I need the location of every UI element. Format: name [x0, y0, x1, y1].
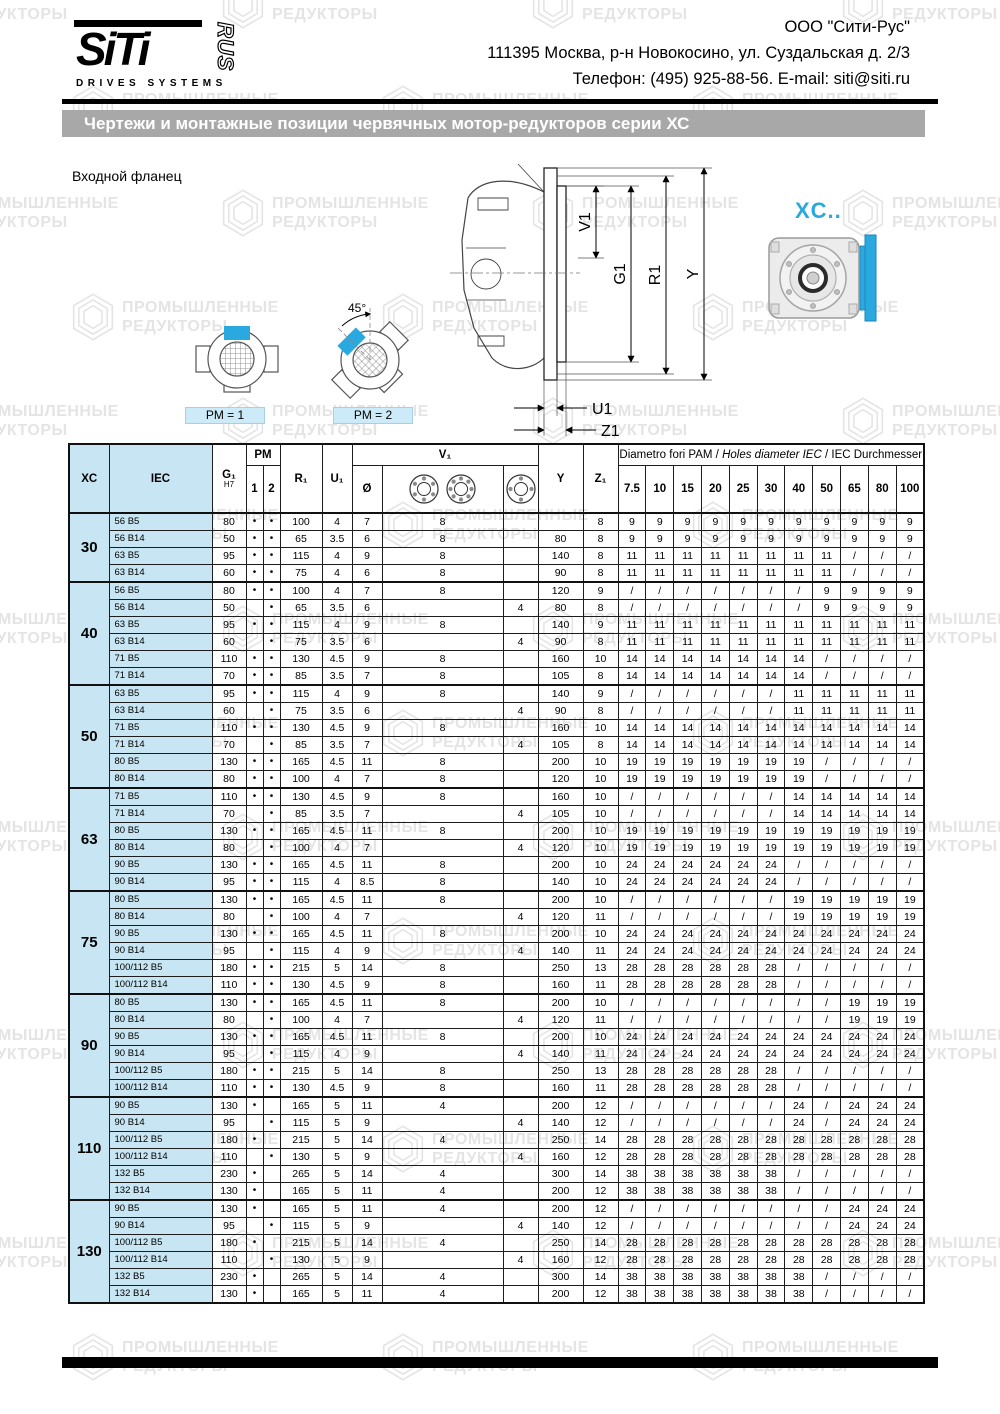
pam-7.5-cell: /	[618, 891, 646, 909]
pm2-cell: •	[263, 891, 280, 909]
pam-100-cell: 14	[896, 737, 924, 754]
v1-8hole-cell: 8	[382, 788, 503, 806]
pam-65-cell: 24	[841, 1097, 869, 1115]
y-cell: 120	[538, 1012, 583, 1029]
diameter-cell: 11	[352, 1200, 382, 1218]
z1-cell: 11	[583, 1046, 618, 1063]
u1-cell: 4	[322, 943, 352, 960]
pam-10-cell: /	[646, 891, 674, 909]
z1-cell: 10	[583, 994, 618, 1012]
pam-80-cell: 24	[868, 1218, 896, 1235]
pam-40-cell: 14	[785, 668, 813, 686]
v1-8hole-cell: 8	[382, 1029, 503, 1046]
iec-cell: 132 B5	[109, 1166, 212, 1183]
u1-cell: 5	[322, 1269, 352, 1286]
diameter-cell: 14	[352, 1235, 382, 1252]
r1-cell: 100	[280, 840, 322, 857]
pam-10-cell: 28	[646, 1132, 674, 1149]
g1-cell: 70	[212, 737, 246, 754]
v1-4hole-cell	[503, 1269, 538, 1286]
pm1-cell: •	[246, 788, 263, 806]
pam-30-cell: 28	[757, 960, 785, 977]
pam-65-cell: 24	[841, 926, 869, 943]
pam-65-cell: 19	[841, 909, 869, 926]
g1-cell: 130	[212, 891, 246, 909]
y-cell: 200	[538, 1183, 583, 1201]
pam-40-cell: 11	[785, 565, 813, 583]
table-row: 90 B5130••1654.511820010242424242424////…	[69, 857, 924, 874]
table-row: 90 B1495••11548.5814010242424242424/////	[69, 874, 924, 892]
table-row: 100/112 B14110•1305941601228282828282828…	[69, 1149, 924, 1166]
g1-cell: 80	[212, 513, 246, 531]
g1-cell: 130	[212, 994, 246, 1012]
pam-15-cell: 24	[674, 1029, 702, 1046]
z1-cell: 8	[583, 600, 618, 617]
dim-z1-label: Z1	[601, 423, 620, 440]
pam-100-cell: 14	[896, 720, 924, 737]
pm2-cell: •	[263, 685, 280, 703]
pam-20-cell: 24	[701, 857, 729, 874]
diameter-cell: 6	[352, 703, 382, 720]
pam-65-cell: 11	[841, 634, 869, 651]
u1-cell: 4.5	[322, 977, 352, 995]
pam-25-cell: 28	[729, 1132, 757, 1149]
pam-15-cell: 19	[674, 840, 702, 857]
pam-30-cell: 28	[757, 1149, 785, 1166]
pam-40-cell: 11	[785, 634, 813, 651]
dim-y-label: Y	[685, 268, 702, 279]
y-cell: 300	[538, 1269, 583, 1286]
pam-10-cell: 38	[646, 1286, 674, 1304]
pam-80-cell: /	[868, 548, 896, 565]
v1-8hole-cell	[382, 840, 503, 857]
pam-50-cell: 14	[813, 788, 841, 806]
pam-65-cell: /	[841, 874, 869, 892]
pam-15-cell: /	[674, 685, 702, 703]
pam-80-cell: 19	[868, 823, 896, 840]
pam-25-cell: 28	[729, 1149, 757, 1166]
pam-50-cell: /	[813, 1097, 841, 1115]
pam-80-cell: 11	[868, 703, 896, 720]
g1-cell: 110	[212, 1080, 246, 1098]
u1-cell: 4	[322, 582, 352, 600]
z1-cell: 13	[583, 960, 618, 977]
z1-cell: 8	[583, 703, 618, 720]
pam-7.5-cell: 28	[618, 960, 646, 977]
g1-cell: 95	[212, 943, 246, 960]
pam-100-cell: /	[896, 1286, 924, 1304]
pam-10-cell: /	[646, 788, 674, 806]
iec-cell: 100/112 B14	[109, 1080, 212, 1098]
pam-80-cell: 19	[868, 909, 896, 926]
table-row: 80 B1480•10047412011////////191919	[69, 1012, 924, 1029]
table-row: 90 B1495•11559414012//////24/242424	[69, 1115, 924, 1132]
pam-15-cell: 19	[674, 771, 702, 789]
iec-cell: 63 B14	[109, 703, 212, 720]
pam-20-cell: 24	[701, 1046, 729, 1063]
col-header-pam: Diametro fori PAM / Holes diameter IEC /…	[618, 444, 924, 466]
pm2-cell: •	[263, 582, 280, 600]
company-info: ООО "Сити-Рус" 111395 Москва, р-н Новоко…	[487, 14, 910, 92]
pam-20-cell: 19	[701, 754, 729, 771]
diameter-cell: 14	[352, 1166, 382, 1183]
pm1-label: PM = 1	[185, 407, 265, 424]
v1-8hole-cell	[382, 1218, 503, 1235]
xc-size-cell: 90	[69, 994, 109, 1097]
pm1-cell: •	[246, 531, 263, 548]
y-cell: 200	[538, 891, 583, 909]
u1-cell: 4	[322, 1046, 352, 1063]
pam-50-cell: /	[813, 668, 841, 686]
pam-20-cell: 11	[701, 617, 729, 634]
pam-40-cell: 19	[785, 840, 813, 857]
g1-cell: 130	[212, 1183, 246, 1201]
pam-50-cell: /	[813, 1080, 841, 1098]
pam-80-cell: 14	[868, 788, 896, 806]
flange-8hole-icon	[444, 483, 478, 495]
pam-25-cell: 14	[729, 737, 757, 754]
diameter-cell: 9	[352, 685, 382, 703]
g1-cell: 110	[212, 788, 246, 806]
u1-cell: 4	[322, 548, 352, 565]
v1-8hole-cell: 8	[382, 668, 503, 686]
pm2-cell	[263, 1269, 280, 1286]
table-row: 90 B5130••1654.5118200102424242424242424…	[69, 1029, 924, 1046]
diameter-cell: 9	[352, 788, 382, 806]
pam-7.5-cell: 9	[618, 513, 646, 531]
pam-7.5-cell: 24	[618, 943, 646, 960]
pam-50-cell: /	[813, 1218, 841, 1235]
pam-100-cell: 14	[896, 788, 924, 806]
pam-25-cell: /	[729, 1115, 757, 1132]
pm2-cell: •	[263, 1252, 280, 1269]
iec-cell: 90 B14	[109, 1115, 212, 1132]
u1-cell: 4.5	[322, 994, 352, 1012]
pam-20-cell: /	[701, 1097, 729, 1115]
v1-4hole-cell	[503, 994, 538, 1012]
y-cell: 300	[538, 1166, 583, 1183]
pam-20-cell: 14	[701, 668, 729, 686]
pam-15-cell: /	[674, 806, 702, 823]
z1-cell: 10	[583, 874, 618, 892]
xc-size-cell: 130	[69, 1200, 109, 1303]
pam-100-cell: 9	[896, 582, 924, 600]
pam-30-cell: 14	[757, 720, 785, 737]
v1-4hole-cell: 4	[503, 806, 538, 823]
g1-cell: 95	[212, 874, 246, 892]
pam-30-cell: 28	[757, 1063, 785, 1080]
r1-cell: 215	[280, 960, 322, 977]
z1-cell: 14	[583, 1235, 618, 1252]
u1-cell: 5	[322, 1286, 352, 1304]
pam-80-cell: /	[868, 1183, 896, 1201]
table-row: 71 B1470•853.574105814141414141414141414…	[69, 737, 924, 754]
diameter-cell: 7	[352, 582, 382, 600]
r1-cell: 65	[280, 600, 322, 617]
z1-cell: 12	[583, 1149, 618, 1166]
pam-40-cell: /	[785, 1012, 813, 1029]
pam-30-cell: 24	[757, 1046, 785, 1063]
pam-65-cell: /	[841, 1286, 869, 1304]
iec-cell: 71 B5	[109, 720, 212, 737]
pam-7.5-cell: 11	[618, 634, 646, 651]
v1-8hole-cell: 4	[382, 1166, 503, 1183]
z1-cell: 10	[583, 771, 618, 789]
pam-100-cell: 28	[896, 1252, 924, 1269]
v1-4hole-cell	[503, 565, 538, 583]
pam-30-cell: 19	[757, 823, 785, 840]
diameter-cell: 14	[352, 1269, 382, 1286]
pam-25-cell: 19	[729, 771, 757, 789]
pam-15-cell: 11	[674, 548, 702, 565]
u1-cell: 4.5	[322, 1029, 352, 1046]
g1-cell: 60	[212, 703, 246, 720]
pm2-cell: •	[263, 617, 280, 634]
pam-65-cell: 28	[841, 1252, 869, 1269]
v1-8hole-cell: 8	[382, 977, 503, 995]
pm1-cell: •	[246, 513, 263, 531]
pam-100-cell: 11	[896, 617, 924, 634]
v1-8hole-cell	[382, 703, 503, 720]
pam-65-cell: /	[841, 771, 869, 789]
pam-80-cell: /	[868, 1063, 896, 1080]
v1-4hole-cell: 4	[503, 840, 538, 857]
pam-15-cell: 28	[674, 1149, 702, 1166]
pam-10-cell: 28	[646, 1235, 674, 1252]
pam-20-cell: /	[701, 582, 729, 600]
pam-65-cell: 14	[841, 737, 869, 754]
v1-8hole-cell: 8	[382, 823, 503, 840]
diameter-cell: 11	[352, 857, 382, 874]
r1-cell: 130	[280, 788, 322, 806]
diameter-cell: 7	[352, 513, 382, 531]
pm1-cell	[246, 737, 263, 754]
v1-8hole-cell: 8	[382, 531, 503, 548]
pam-7.5-cell: /	[618, 994, 646, 1012]
u1-cell: 5	[322, 1166, 352, 1183]
y-cell: 200	[538, 857, 583, 874]
r1-cell: 115	[280, 943, 322, 960]
pam-25-cell: 11	[729, 617, 757, 634]
z1-cell: 14	[583, 1166, 618, 1183]
pm1-cell: •	[246, 582, 263, 600]
col-header-pam-30: 30	[757, 466, 785, 514]
pam-25-cell: 11	[729, 634, 757, 651]
pm2-cell: •	[263, 668, 280, 686]
pam-50-cell: /	[813, 994, 841, 1012]
pam-30-cell: 24	[757, 943, 785, 960]
table-row: 56 B1450••653.56880899999999999	[69, 531, 924, 548]
pm2-cell: •	[263, 840, 280, 857]
pm2-cell: •	[263, 565, 280, 583]
pam-10-cell: /	[646, 685, 674, 703]
pam-25-cell: 28	[729, 1063, 757, 1080]
iec-cell: 100/112 B5	[109, 1132, 212, 1149]
v1-4hole-cell	[503, 977, 538, 995]
r1-cell: 130	[280, 720, 322, 737]
diameter-cell: 7	[352, 840, 382, 857]
pam-30-cell: 11	[757, 565, 785, 583]
col-header-xc: XC	[69, 444, 109, 513]
pam-7.5-cell: 28	[618, 1080, 646, 1098]
diameter-cell: 9	[352, 651, 382, 668]
pam-10-cell: 28	[646, 1063, 674, 1080]
v1-4hole-cell	[503, 617, 538, 634]
pam-50-cell: 14	[813, 737, 841, 754]
v1-8hole-cell	[382, 943, 503, 960]
pam-50-cell: /	[813, 1183, 841, 1201]
pam-30-cell: 19	[757, 771, 785, 789]
pam-30-cell: 28	[757, 1132, 785, 1149]
iec-cell: 71 B5	[109, 788, 212, 806]
pam-30-cell: /	[757, 685, 785, 703]
g1-cell: 110	[212, 1252, 246, 1269]
xc-size-cell: 30	[69, 513, 109, 582]
pam-100-cell: /	[896, 857, 924, 874]
pam-30-cell: /	[757, 1012, 785, 1029]
g1-cell: 50	[212, 600, 246, 617]
u1-cell: 5	[322, 1132, 352, 1149]
v1-8hole-cell	[382, 806, 503, 823]
table-row: 90 B1495•1154941401124242424242424242424…	[69, 1046, 924, 1063]
pm1-cell: •	[246, 1063, 263, 1080]
iec-cell: 100/112 B14	[109, 1149, 212, 1166]
pam-100-cell: 28	[896, 1132, 924, 1149]
pm2-cell	[263, 1235, 280, 1252]
pm2-cell: •	[263, 1218, 280, 1235]
r1-cell: 115	[280, 874, 322, 892]
pam-25-cell: /	[729, 994, 757, 1012]
table-row: 11090 B5130•165511420012//////24/242424	[69, 1097, 924, 1115]
iec-cell: 56 B5	[109, 513, 212, 531]
pam-10-cell: 24	[646, 926, 674, 943]
pam-40-cell: 24	[785, 1115, 813, 1132]
y-cell: 120	[538, 771, 583, 789]
pam-40-cell: /	[785, 582, 813, 600]
pam-20-cell: 9	[701, 531, 729, 548]
pam-10-cell: 24	[646, 874, 674, 892]
v1-4hole-cell	[503, 823, 538, 840]
pam-100-cell: 11	[896, 634, 924, 651]
pm2-cell: •	[263, 926, 280, 943]
table-row: 132 B5230•265514430014383838383838/////	[69, 1166, 924, 1183]
diameter-cell: 9	[352, 943, 382, 960]
col-header-r1: R₁	[280, 444, 322, 513]
pam-20-cell: /	[701, 1200, 729, 1218]
pam-7.5-cell: 38	[618, 1286, 646, 1304]
pam-65-cell: 24	[841, 1046, 869, 1063]
table-row: 90 B1495•11559414012////////242424	[69, 1218, 924, 1235]
pam-100-cell: 19	[896, 994, 924, 1012]
u1-cell: 4	[322, 565, 352, 583]
pam-65-cell: /	[841, 857, 869, 874]
pam-15-cell: /	[674, 1012, 702, 1029]
v1-4hole-cell	[503, 1080, 538, 1098]
col-header-pm: PM	[246, 444, 280, 466]
pam-50-cell: 28	[813, 1252, 841, 1269]
r1-cell: 130	[280, 977, 322, 995]
col-header-pam-40: 40	[785, 466, 813, 514]
r1-cell: 115	[280, 548, 322, 565]
pam-15-cell: 38	[674, 1166, 702, 1183]
pam-30-cell: 28	[757, 1235, 785, 1252]
pam-15-cell: 14	[674, 668, 702, 686]
pam-65-cell: /	[841, 1269, 869, 1286]
diameter-cell: 9	[352, 720, 382, 737]
pm2-cell: •	[263, 1012, 280, 1029]
pam-30-cell: /	[757, 703, 785, 720]
g1-cell: 60	[212, 565, 246, 583]
xc-size-cell: 40	[69, 582, 109, 685]
table-row: 80 B1480••1004781201019191919191919////	[69, 771, 924, 789]
z1-cell: 10	[583, 788, 618, 806]
col-header-g1: G₁H7	[212, 444, 246, 513]
table-row: 63 B1460••754689081111111111111111///	[69, 565, 924, 583]
pam-15-cell: 14	[674, 651, 702, 668]
y-cell: 80	[538, 600, 583, 617]
pm1-cell: •	[246, 1132, 263, 1149]
g1-cell: 130	[212, 754, 246, 771]
r1-cell: 165	[280, 926, 322, 943]
v1-4hole-cell: 4	[503, 634, 538, 651]
pm1-cell: •	[246, 960, 263, 977]
dim-g1-label: G1	[612, 263, 629, 284]
pam-100-cell: 24	[896, 1046, 924, 1063]
pam-15-cell: 38	[674, 1286, 702, 1304]
pam-15-cell: 9	[674, 531, 702, 548]
logo-rus: RUS	[212, 22, 238, 78]
pm2-cell: •	[263, 806, 280, 823]
pam-80-cell: 14	[868, 806, 896, 823]
pam-30-cell: 38	[757, 1269, 785, 1286]
pam-65-cell: /	[841, 565, 869, 583]
pm1-cell: •	[246, 1183, 263, 1201]
v1-4hole-cell	[503, 754, 538, 771]
v1-4hole-cell	[503, 874, 538, 892]
z1-cell: 10	[583, 840, 618, 857]
pam-65-cell: 14	[841, 720, 869, 737]
pam-20-cell: 19	[701, 840, 729, 857]
z1-cell: 14	[583, 1132, 618, 1149]
z1-cell: 10	[583, 651, 618, 668]
pam-20-cell: 38	[701, 1183, 729, 1201]
pam-80-cell: 24	[868, 1115, 896, 1132]
pam-15-cell: 28	[674, 960, 702, 977]
pam-65-cell: 19	[841, 1012, 869, 1029]
diameter-cell: 9	[352, 1080, 382, 1098]
v1-8hole-cell: 4	[382, 1183, 503, 1201]
v1-8hole-cell	[382, 737, 503, 754]
diameter-cell: 7	[352, 806, 382, 823]
v1-8hole-cell: 8	[382, 857, 503, 874]
pm1-cell: •	[246, 1166, 263, 1183]
flange-pictogram-cell	[503, 466, 538, 514]
iec-cell: 56 B14	[109, 531, 212, 548]
r1-cell: 100	[280, 909, 322, 926]
pam-65-cell: 19	[841, 891, 869, 909]
z1-cell: 9	[583, 617, 618, 634]
pam-7.5-cell: 24	[618, 874, 646, 892]
g1-cell: 80	[212, 909, 246, 926]
v1-8hole-cell	[382, 1012, 503, 1029]
z1-cell: 10	[583, 823, 618, 840]
pam-50-cell: /	[813, 1063, 841, 1080]
g1-cell: 95	[212, 1115, 246, 1132]
pam-20-cell: 24	[701, 1029, 729, 1046]
diameter-cell: 6	[352, 531, 382, 548]
z1-cell: 8	[583, 565, 618, 583]
pam-80-cell: 28	[868, 1132, 896, 1149]
